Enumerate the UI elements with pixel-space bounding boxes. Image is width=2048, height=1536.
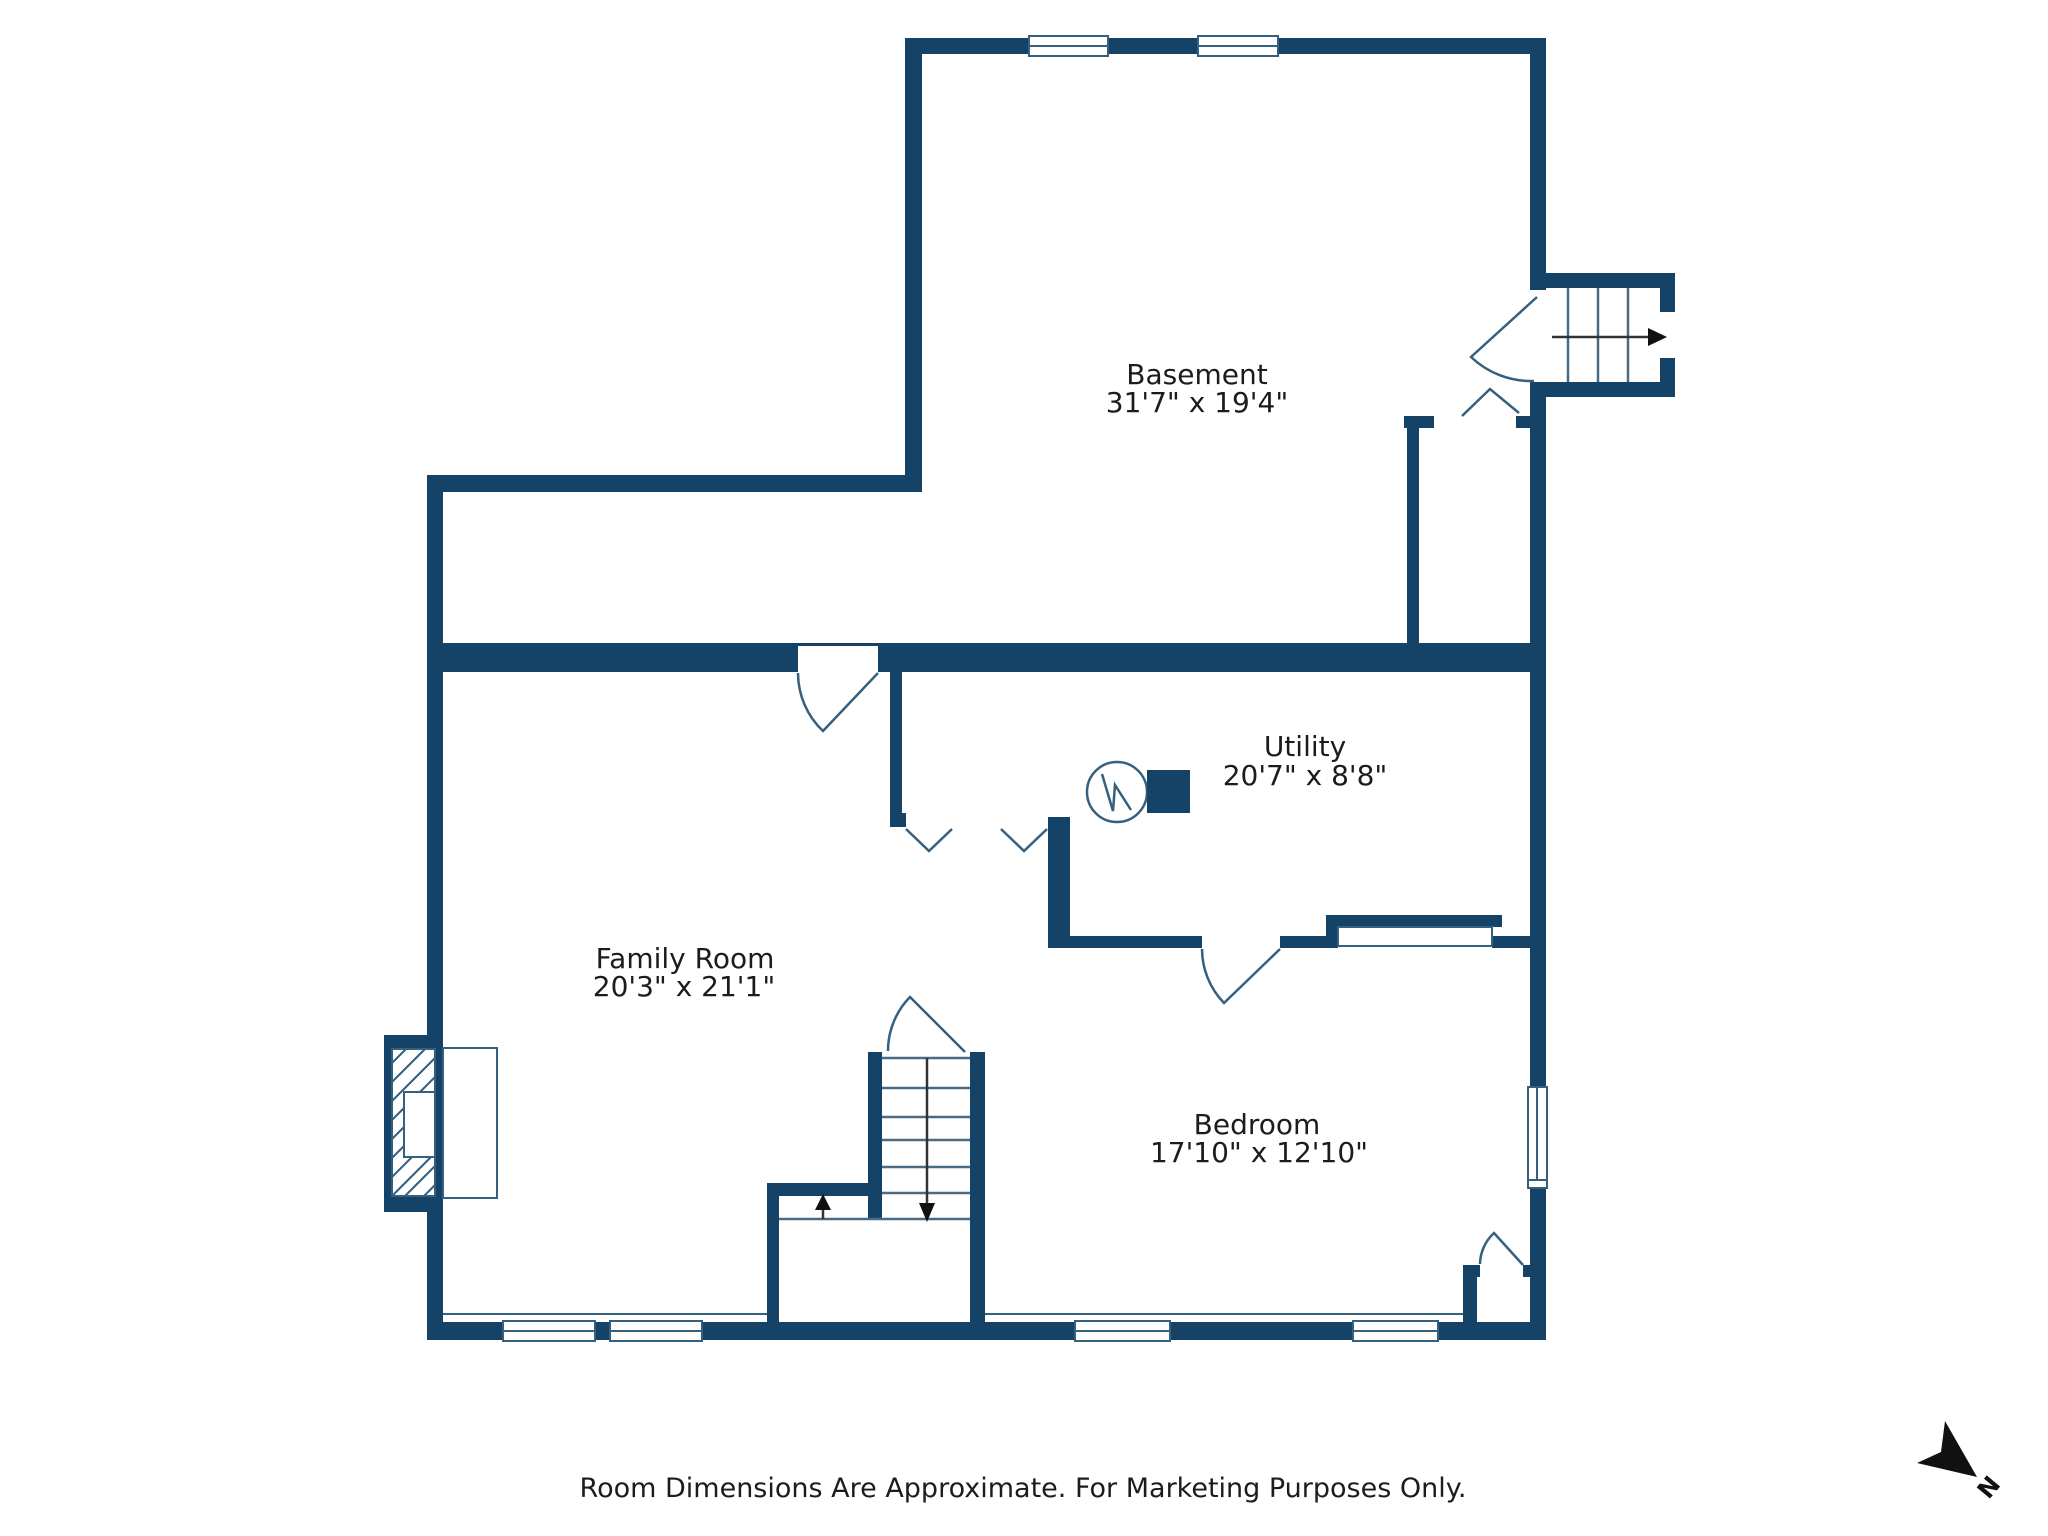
wall-segment: [427, 475, 443, 1035]
wall-segment: [890, 672, 902, 813]
window: [1029, 36, 1108, 56]
wall-segment: [868, 1052, 882, 1220]
wall-segment: [767, 1183, 868, 1196]
window: [1353, 1321, 1438, 1341]
wall-segment: [1404, 416, 1434, 428]
fireplace: [384, 1035, 497, 1212]
wall-segment: [1530, 382, 1546, 1087]
sliding-closet-doors: [1338, 927, 1492, 946]
wall-segment: [1280, 936, 1332, 948]
hearth: [443, 1048, 497, 1198]
background: [0, 0, 2048, 1536]
floor-plan-page: Basement 31'7" x 19'4" Utility 20'7" x 8…: [0, 0, 2048, 1536]
wall-segment: [905, 38, 922, 492]
floor-plan-canvas: Basement 31'7" x 19'4" Utility 20'7" x 8…: [0, 0, 2048, 1536]
window: [1198, 36, 1278, 56]
wall-segment: [1523, 1265, 1530, 1277]
firebox: [404, 1092, 435, 1157]
bedroom-dims: 17'10" x 12'10": [1150, 1136, 1368, 1169]
wall-segment: [1492, 936, 1532, 948]
water-heater-icon: [1147, 770, 1190, 813]
window: [610, 1321, 702, 1341]
wall-segment: [1407, 428, 1419, 643]
wall-segment: [427, 1212, 443, 1340]
basement-dims: 31'7" x 19'4": [1106, 386, 1288, 419]
wall-segment: [1048, 817, 1070, 948]
wall-segment: [427, 643, 1530, 672]
furnace-icon: [1087, 762, 1190, 822]
wall-segment: [970, 1052, 985, 1322]
wall-segment: [1332, 915, 1502, 927]
wall-segment: [1530, 1187, 1546, 1340]
utility-dims: 20'7" x 8'8": [1223, 759, 1388, 792]
wall-segment: [427, 475, 922, 492]
window: [1528, 1087, 1547, 1188]
wall-segment: [1516, 416, 1530, 428]
wall-segment: [1463, 1265, 1480, 1277]
window: [503, 1321, 595, 1341]
wall-segment: [1463, 1277, 1477, 1322]
stair-wall: [1546, 382, 1675, 397]
footer-disclaimer: Room Dimensions Are Approximate. For Mar…: [580, 1473, 1467, 1504]
wall-segment: [1070, 936, 1202, 948]
wall-segment: [890, 813, 906, 827]
wall-segment: [1530, 38, 1546, 290]
stair-wall: [1660, 288, 1675, 312]
family-room-dims: 20'3" x 21'1": [593, 970, 775, 1003]
wall-segment: [767, 1183, 779, 1322]
stair-wall: [1660, 358, 1675, 382]
window: [1075, 1321, 1170, 1341]
stair-wall: [1546, 273, 1675, 288]
